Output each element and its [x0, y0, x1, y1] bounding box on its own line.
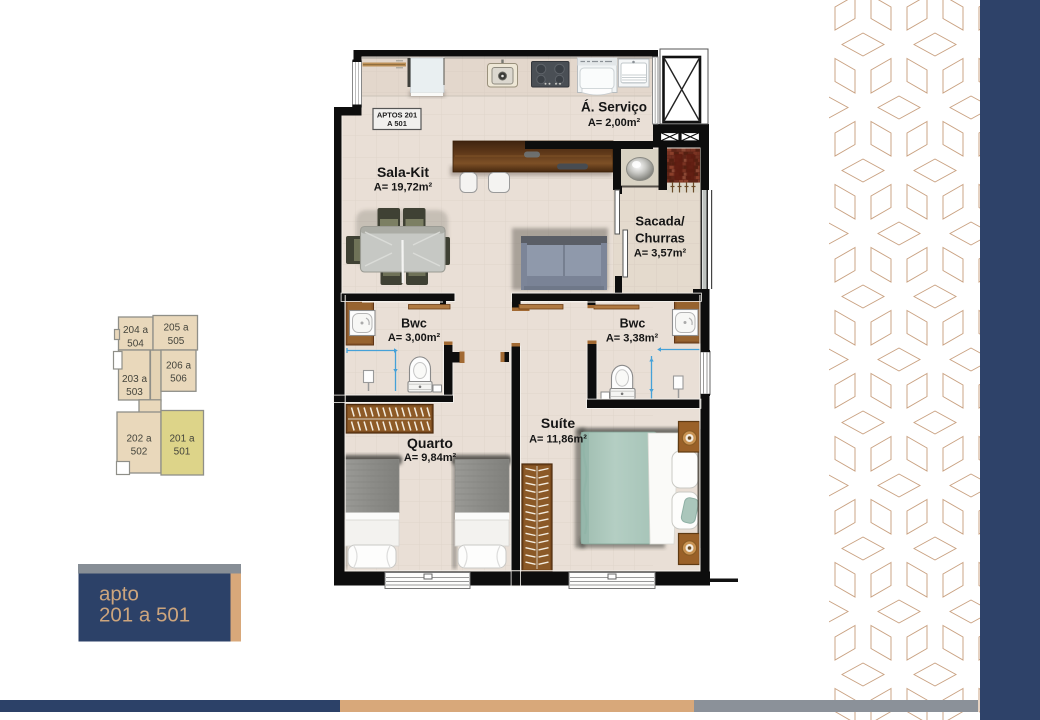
svg-text:506: 506 — [170, 374, 187, 385]
svg-text:Á. Serviço: Á. Serviço — [581, 100, 647, 115]
svg-text:Bwc: Bwc — [620, 317, 646, 331]
svg-text:Sala-Kit: Sala-Kit — [377, 164, 429, 180]
svg-text:A= 3,57m²: A= 3,57m² — [634, 248, 687, 260]
svg-text:A= 9,84m²: A= 9,84m² — [404, 452, 457, 464]
svg-text:apto: apto — [99, 583, 139, 606]
svg-text:503: 503 — [126, 387, 143, 398]
svg-text:203 a: 203 a — [122, 374, 147, 385]
svg-text:Churras: Churras — [635, 231, 685, 246]
svg-text:204 a: 204 a — [123, 325, 148, 336]
svg-text:A= 19,72m²: A= 19,72m² — [374, 182, 433, 194]
svg-text:Suíte: Suíte — [541, 415, 575, 431]
svg-text:504: 504 — [127, 339, 144, 350]
svg-text:Sacada/: Sacada/ — [635, 214, 685, 229]
svg-text:A 501: A 501 — [387, 119, 407, 128]
svg-text:A= 3,00m²: A= 3,00m² — [388, 332, 441, 344]
svg-text:501: 501 — [174, 447, 191, 458]
svg-text:202 a: 202 a — [126, 434, 151, 445]
svg-text:205 a: 205 a — [163, 323, 188, 334]
svg-text:201 a: 201 a — [169, 434, 194, 445]
svg-text:A= 3,38m²: A= 3,38m² — [606, 333, 659, 345]
svg-text:Quarto: Quarto — [407, 435, 453, 451]
svg-text:502: 502 — [131, 447, 148, 458]
svg-text:206 a: 206 a — [166, 361, 191, 372]
svg-text:Bwc: Bwc — [401, 317, 427, 331]
svg-text:A= 2,00m²: A= 2,00m² — [588, 117, 641, 129]
svg-text:201 a 501: 201 a 501 — [99, 604, 190, 627]
svg-text:505: 505 — [168, 336, 185, 347]
svg-text:A= 11,86m²: A= 11,86m² — [529, 434, 587, 446]
